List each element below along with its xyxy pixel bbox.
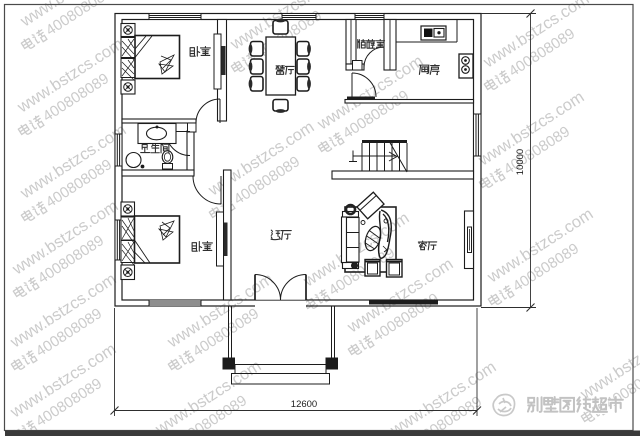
svg-text:10000: 10000 [515, 149, 526, 175]
svg-text:12600: 12600 [291, 399, 317, 410]
